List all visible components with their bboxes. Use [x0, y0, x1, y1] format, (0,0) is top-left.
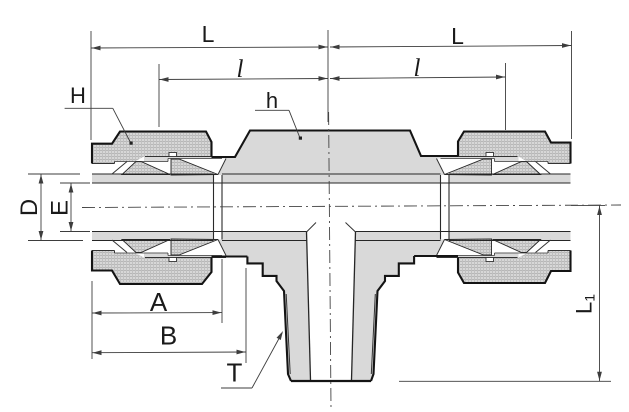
svg-text:l: l [237, 56, 244, 83]
svg-text:T: T [227, 358, 243, 388]
svg-text:L: L [451, 23, 464, 49]
svg-text:h: h [266, 88, 278, 113]
svg-text:L: L [202, 21, 215, 47]
svg-text:B: B [160, 321, 177, 351]
svg-text:E: E [47, 200, 74, 216]
svg-text:l: l [414, 55, 421, 82]
svg-text:A: A [150, 287, 168, 317]
svg-text:H: H [70, 83, 86, 108]
svg-text:D: D [16, 199, 43, 216]
